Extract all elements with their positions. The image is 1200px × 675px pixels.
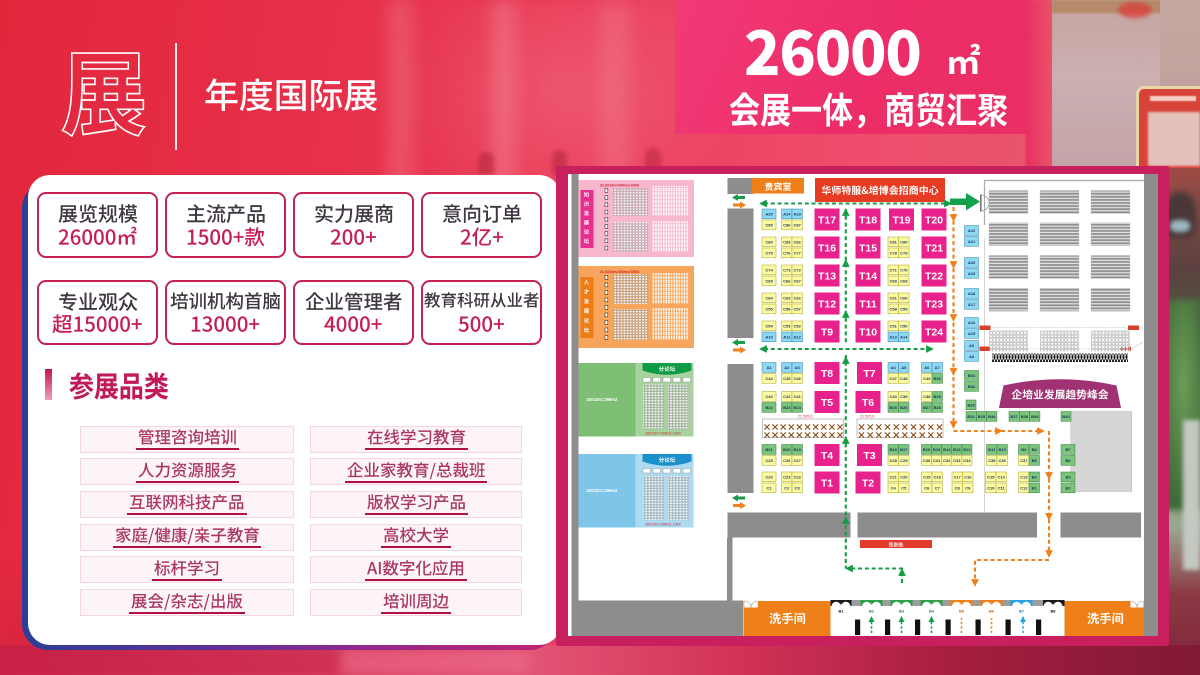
svg-text:18X22m=396m2 198X: 18X22m=396m2 198X [645,523,681,527]
svg-text:B7: B7 [1065,447,1071,452]
svg-text:C79: C79 [900,251,908,256]
svg-text:C37: C37 [1020,458,1028,463]
svg-text:B7: B7 [1019,609,1024,614]
svg-text:C86: C86 [783,223,791,228]
svg-text:C72: C72 [794,268,802,273]
svg-text:C35: C35 [988,458,996,463]
svg-text:T12: T12 [818,299,836,311]
svg-text:C56: C56 [783,307,791,312]
svg-text:C54: C54 [765,324,773,329]
svg-text:C57: C57 [794,307,802,312]
svg-text:C38: C38 [923,394,931,399]
svg-text:B33: B33 [967,403,975,408]
svg-text:31.6X19m=600m2 600X: 31.6X19m=600m2 600X [600,184,640,188]
svg-text:A2: A2 [784,365,790,370]
svg-text:T19: T19 [892,215,910,227]
svg-text:C30: C30 [923,458,931,463]
svg-text:C78: C78 [890,251,898,256]
svg-text:A22: A22 [968,228,976,233]
svg-text:B13: B13 [953,447,961,452]
svg-text:T11: T11 [859,299,877,311]
svg-text:C68: C68 [890,279,898,284]
svg-text:C74: C74 [765,268,773,273]
svg-text:C16: C16 [964,475,972,480]
svg-text:A18: A18 [968,291,976,296]
svg-text:A16: A16 [968,320,976,325]
svg-text:B32: B32 [968,384,976,389]
svg-text:T17: T17 [818,215,836,227]
svg-text:B40: B40 [1062,414,1070,419]
svg-text:A9: A9 [969,343,975,348]
svg-text:A19: A19 [968,271,976,276]
svg-text:B16: B16 [923,447,931,452]
svg-text:C12: C12 [1020,486,1028,491]
svg-text:T1: T1 [821,478,833,490]
svg-text:T22: T22 [925,271,943,283]
svg-text:C83: C83 [783,240,791,245]
svg-text:B18: B18 [890,447,898,452]
svg-text:T7: T7 [863,368,875,380]
svg-text:B26: B26 [900,405,908,410]
svg-text:C33: C33 [953,458,961,463]
svg-text:T10: T10 [859,327,877,339]
svg-text:C61: C61 [890,296,898,301]
svg-text:C19: C19 [923,475,931,480]
svg-text:T20: T20 [925,215,943,227]
svg-text:T5: T5 [821,397,833,409]
svg-text:T13: T13 [818,271,836,283]
svg-text:C24: C24 [765,475,773,480]
svg-text:B3: B3 [1065,475,1071,480]
svg-text:T2: T2 [862,478,874,490]
svg-text:B36: B36 [988,414,996,419]
svg-text:A11: A11 [783,335,791,340]
svg-text:B8: B8 [1051,609,1057,614]
svg-text:C47: C47 [890,376,898,381]
svg-text:C11: C11 [998,486,1006,491]
svg-text:B23: B23 [783,405,791,410]
svg-text:A15: A15 [968,331,976,336]
svg-text:C55: C55 [765,307,773,312]
svg-text:T21: T21 [925,243,943,255]
svg-text:C80: C80 [900,240,908,245]
svg-text:T18: T18 [859,215,877,227]
svg-text:C60: C60 [900,296,908,301]
svg-text:21.5X5.6: 21.5X5.6 [860,415,874,419]
svg-text:B5: B5 [959,609,965,614]
svg-text:C53: C53 [783,324,791,329]
svg-text:C20: C20 [900,475,908,480]
svg-text:18X22m=396m2: 18X22m=396m2 [586,488,618,493]
svg-text:C82: C82 [794,240,802,245]
svg-text:A13: A13 [890,335,898,340]
svg-text:18X22m=396m2: 18X22m=396m2 [586,397,618,402]
svg-text:C22: C22 [794,475,802,480]
svg-text:B19: B19 [794,447,802,452]
svg-text:C66: C66 [783,279,791,284]
svg-text:C25: C25 [765,458,773,463]
svg-text:C36: C36 [999,458,1007,463]
svg-text:B8: B8 [1032,447,1038,452]
svg-text:C18: C18 [934,475,942,480]
svg-text:A10: A10 [765,335,773,340]
svg-text:C23: C23 [783,475,791,480]
svg-text:C8: C8 [955,486,961,491]
svg-text:B24: B24 [794,405,802,410]
svg-text:C62: C62 [794,296,802,301]
svg-text:C51: C51 [890,324,898,329]
svg-text:T24: T24 [925,327,943,339]
svg-text:B25: B25 [890,405,898,410]
svg-text:T9: T9 [821,327,833,339]
svg-text:A3: A3 [795,365,801,370]
svg-text:C42: C42 [783,394,791,399]
svg-text:C41: C41 [794,394,802,399]
svg-text:T3: T3 [863,450,875,462]
svg-text:C71: C71 [890,268,898,273]
svg-text:C4: C4 [891,486,897,491]
svg-text:C70: C70 [900,268,908,273]
svg-text:C13: C13 [1020,475,1028,480]
svg-text:C26: C26 [783,458,791,463]
svg-text:C45: C45 [783,376,791,381]
svg-text:C3: C3 [795,486,801,491]
svg-text:A1: A1 [766,365,772,370]
svg-text:C76: C76 [783,251,791,256]
svg-text:A6: A6 [924,365,930,370]
svg-text:C69: C69 [900,279,908,284]
svg-text:B10: B10 [999,447,1007,452]
svg-text:21.5X5.6: 21.5X5.6 [798,415,812,419]
svg-text:T4: T4 [821,450,833,462]
svg-text:B38: B38 [1021,414,1029,419]
svg-text:A25: A25 [765,212,773,217]
svg-text:C39: C39 [900,394,908,399]
svg-text:C67: C67 [794,279,802,284]
svg-text:B3: B3 [899,609,905,614]
svg-text:B2: B2 [1065,486,1071,491]
svg-text:A21: A21 [968,239,976,244]
svg-text:A12: A12 [794,335,802,340]
svg-text:C34: C34 [963,458,971,463]
svg-text:B6: B6 [1065,458,1071,463]
svg-text:B1: B1 [839,609,845,614]
svg-text:C1: C1 [766,486,772,491]
svg-text:A17: A17 [968,302,976,307]
svg-text:A14: A14 [900,335,908,340]
svg-text:T6: T6 [862,397,874,409]
svg-text:A7: A7 [935,365,941,370]
svg-text:B39: B39 [1031,414,1039,419]
svg-text:18X22m=396m2 198X: 18X22m=396m2 198X [645,432,681,436]
svg-text:B31: B31 [968,373,976,378]
svg-text:B6: B6 [989,609,995,614]
svg-text:C44: C44 [765,376,773,381]
svg-text:C15: C15 [987,475,995,480]
svg-text:B1: B1 [1032,486,1038,491]
svg-text:B2: B2 [869,609,875,614]
svg-text:C27: C27 [794,458,802,463]
svg-text:B11: B11 [988,447,996,452]
svg-text:C32: C32 [943,458,951,463]
svg-text:B5: B5 [1032,458,1038,463]
svg-text:B35: B35 [978,414,986,419]
svg-text:C50: C50 [900,324,908,329]
svg-text:C7: C7 [935,486,941,491]
svg-text:B37: B37 [1010,414,1018,419]
svg-text:A4: A4 [891,365,897,370]
svg-text:B15: B15 [933,447,941,452]
svg-text:B28: B28 [934,405,942,410]
svg-text:C10: C10 [987,486,995,491]
svg-text:C43: C43 [765,394,773,399]
svg-text:C46: C46 [794,376,802,381]
svg-text:A5: A5 [901,365,907,370]
svg-text:A8: A8 [969,354,975,359]
svg-text:C48: C48 [900,376,908,381]
svg-text:C49: C49 [923,376,931,381]
svg-text:C65: C65 [765,279,773,284]
svg-text:C21: C21 [890,475,898,480]
svg-text:B4: B4 [929,609,935,614]
svg-text:C14: C14 [998,475,1006,480]
svg-text:B12: B12 [963,447,971,452]
svg-text:B20: B20 [783,447,791,452]
svg-text:B27: B27 [923,405,931,410]
svg-text:B9: B9 [1021,447,1027,452]
svg-text:C17: C17 [954,475,962,480]
svg-text:C64: C64 [765,296,773,301]
svg-text:A24: A24 [783,212,791,217]
svg-text:C84: C84 [765,240,773,245]
svg-text:C2: C2 [784,486,790,491]
svg-text:C87: C87 [794,223,802,228]
svg-text:C58: C58 [890,307,898,312]
svg-text:T15: T15 [859,243,877,255]
svg-text:C29: C29 [900,458,908,463]
svg-text:B21: B21 [765,447,773,452]
svg-text:B30: B30 [934,376,942,381]
svg-text:T23: T23 [925,299,943,311]
svg-text:B29: B29 [934,394,942,399]
svg-text:31.6X19m=600m2 600X: 31.6X19m=600m2 600X [600,270,640,274]
svg-text:C9: C9 [965,486,971,491]
svg-text:C59: C59 [900,307,908,312]
svg-text:T16: T16 [818,243,836,255]
svg-text:C63: C63 [783,296,791,301]
svg-text:B4: B4 [1032,475,1038,480]
svg-text:C77: C77 [794,251,802,256]
svg-text:C81: C81 [890,240,898,245]
svg-text:C85: C85 [765,223,773,228]
svg-text:C73: C73 [783,268,791,273]
svg-text:C5: C5 [901,486,907,491]
svg-text:B22: B22 [765,405,773,410]
svg-text:B17: B17 [900,447,908,452]
svg-text:T14: T14 [859,271,877,283]
svg-text:B34: B34 [967,414,975,419]
svg-text:C31: C31 [933,458,941,463]
svg-text:C28: C28 [890,458,898,463]
svg-text:T8: T8 [821,368,833,380]
svg-text:A23: A23 [794,212,802,217]
svg-text:B14: B14 [943,447,951,452]
svg-text:A20: A20 [968,260,976,265]
svg-text:C6: C6 [924,486,930,491]
svg-text:C40: C40 [890,394,898,399]
svg-text:C75: C75 [765,251,773,256]
svg-text:C52: C52 [794,324,802,329]
